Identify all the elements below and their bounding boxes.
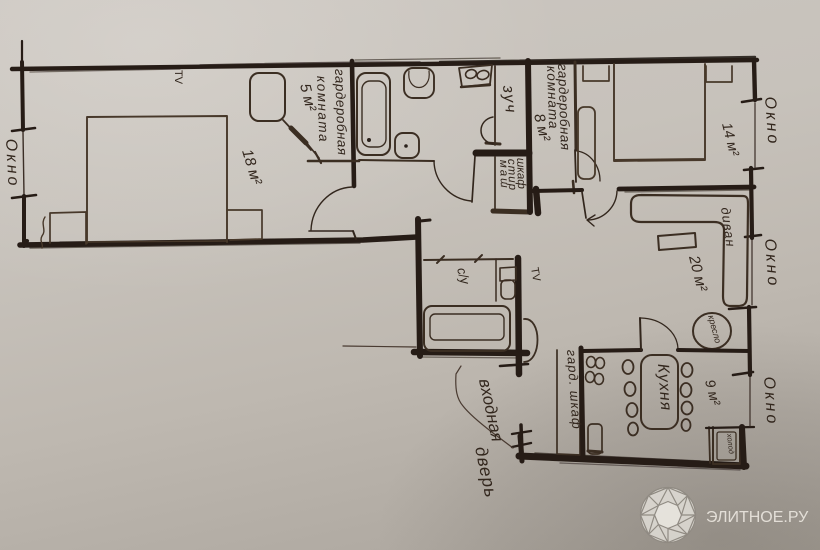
svg-text:18 м²: 18 м² xyxy=(238,147,265,187)
svg-text:9 м²: 9 м² xyxy=(702,378,724,408)
svg-text:маш: маш xyxy=(497,160,510,190)
svg-text:Окно: Окно xyxy=(761,238,781,289)
svg-text:14 м²: 14 м² xyxy=(719,121,743,159)
svg-text:20 м²: 20 м² xyxy=(685,253,711,294)
svg-text:с/у: с/у xyxy=(454,266,473,287)
svg-text:зуч: зуч xyxy=(499,84,519,116)
svg-text:Кухня: Кухня xyxy=(654,363,674,412)
svg-text:Окно: Окно xyxy=(761,96,781,147)
svg-text:TV: TV xyxy=(528,266,542,283)
svg-text:ЭЛИТНОЕ.РУ: ЭЛИТНОЕ.РУ xyxy=(706,509,809,526)
svg-text:Окно: Окно xyxy=(2,138,22,189)
svg-text:холод: холод xyxy=(725,432,736,454)
svg-text:TV: TV xyxy=(172,70,184,85)
svg-text:входная: входная xyxy=(475,377,507,443)
svg-text:Окно: Окно xyxy=(760,376,780,427)
svg-text:диван: диван xyxy=(718,206,738,248)
svg-text:кресло: кресло xyxy=(706,314,723,344)
svg-text:дверь: дверь xyxy=(471,445,501,500)
svg-text:гардеробная: гардеробная xyxy=(332,69,350,156)
